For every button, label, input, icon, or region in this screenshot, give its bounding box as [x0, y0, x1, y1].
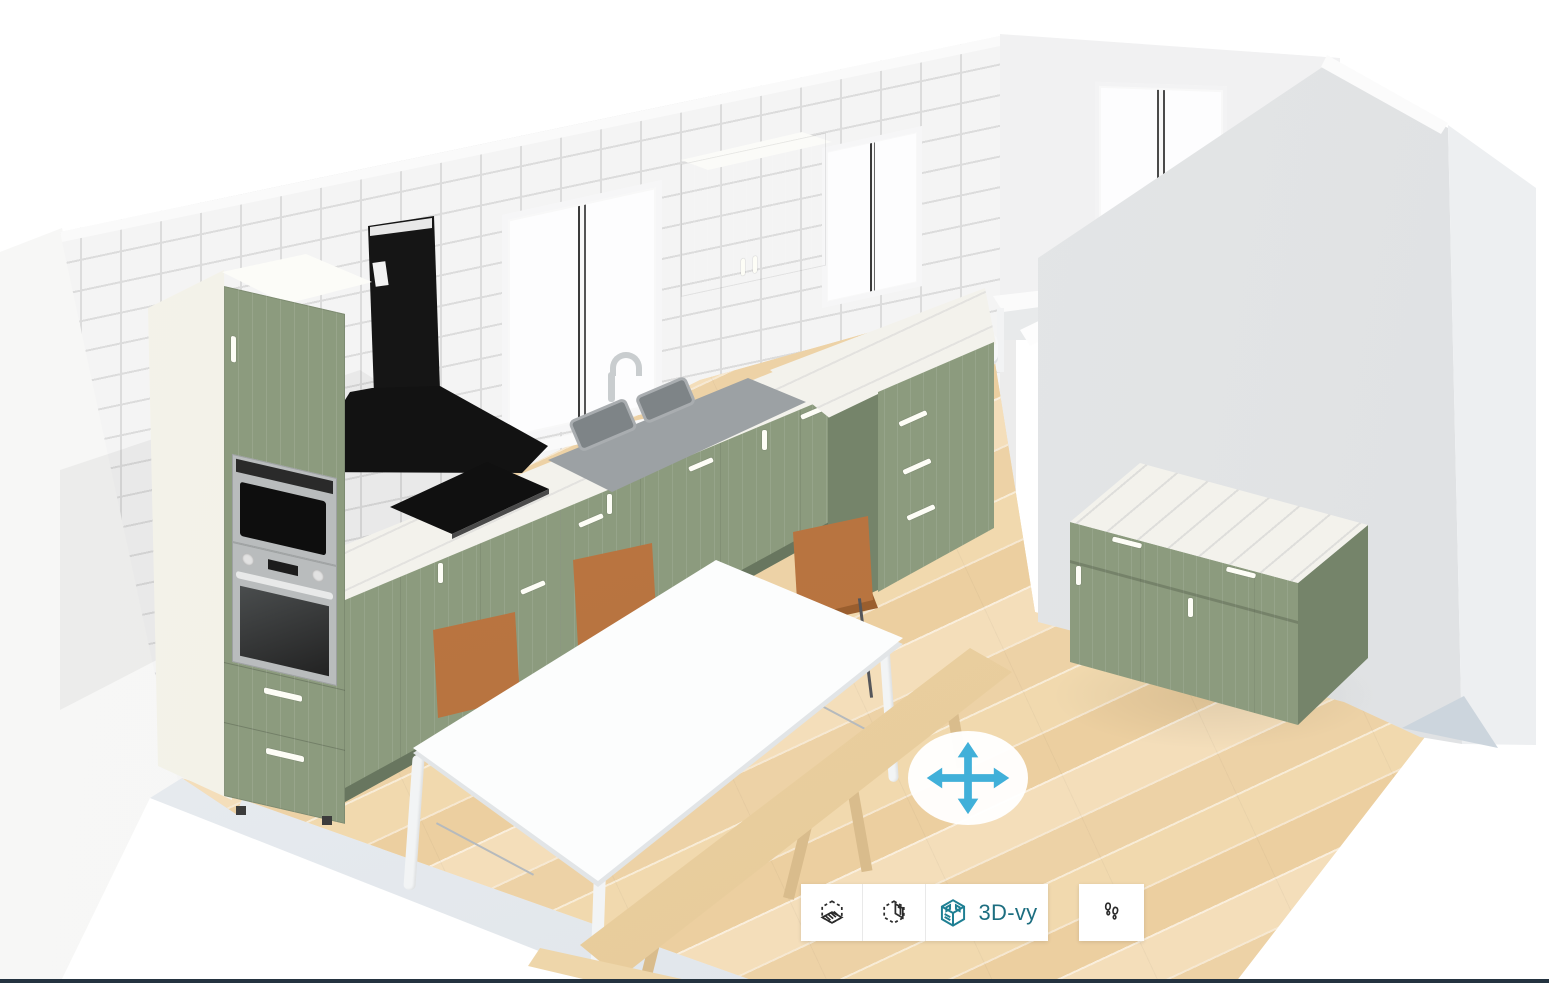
built-in-oven[interactable]: [232, 542, 337, 686]
tall-oven-cabinet[interactable]: [224, 286, 345, 824]
island-handle: [1188, 598, 1193, 617]
wall-cabinet-handle: [741, 258, 745, 276]
window-pane: [874, 133, 917, 290]
drawer-handle: [264, 687, 302, 702]
cabinet-foot: [322, 816, 332, 825]
oven-display: [268, 559, 298, 576]
3d-view-label: 3D-vy: [979, 900, 1038, 926]
3d-view-button[interactable]: 3D-vy: [925, 884, 1048, 941]
walk-toolbar: [1079, 884, 1144, 941]
footsteps-icon: [1098, 899, 1126, 927]
view-mode-toolbar: 3D-vy: [801, 884, 1048, 941]
oven-knob: [312, 568, 324, 583]
bottom-bar: [0, 979, 1549, 983]
3d-view-cube-icon: [937, 897, 969, 929]
pan-control[interactable]: [908, 731, 1028, 825]
drawer-handle: [266, 748, 304, 763]
kitchen-planner-app: 3D-vy: [0, 0, 1549, 983]
faucet[interactable]: [610, 352, 642, 376]
cabinet-foot: [236, 806, 246, 815]
base-handle: [438, 563, 443, 583]
tall-cabinet-handle: [231, 336, 236, 363]
white-desk-leg: [997, 308, 1004, 372]
microwave-window: [240, 482, 326, 556]
plan-view-button[interactable]: [801, 884, 862, 941]
window-pane: [584, 190, 654, 419]
walk-view-button[interactable]: [1079, 884, 1144, 941]
base-handle: [607, 494, 612, 514]
faucet-base: [608, 372, 615, 402]
elevation-view-button[interactable]: [862, 884, 925, 941]
island-handle: [1076, 566, 1081, 585]
oven-door-glass: [240, 586, 329, 677]
base-handle: [762, 430, 767, 450]
wall-cabinet-handle: [753, 256, 757, 274]
oven-knob: [242, 552, 254, 567]
elevation-view-cube-icon: [879, 898, 909, 928]
plan-view-cube-icon: [817, 898, 847, 928]
window-pane: [828, 143, 872, 301]
window-pane: [510, 206, 580, 435]
move-arrows-icon: [925, 740, 1011, 816]
drawer-seam: [224, 722, 345, 751]
scene-3d-view[interactable]: [0, 0, 1549, 983]
window-2[interactable]: [822, 126, 922, 308]
